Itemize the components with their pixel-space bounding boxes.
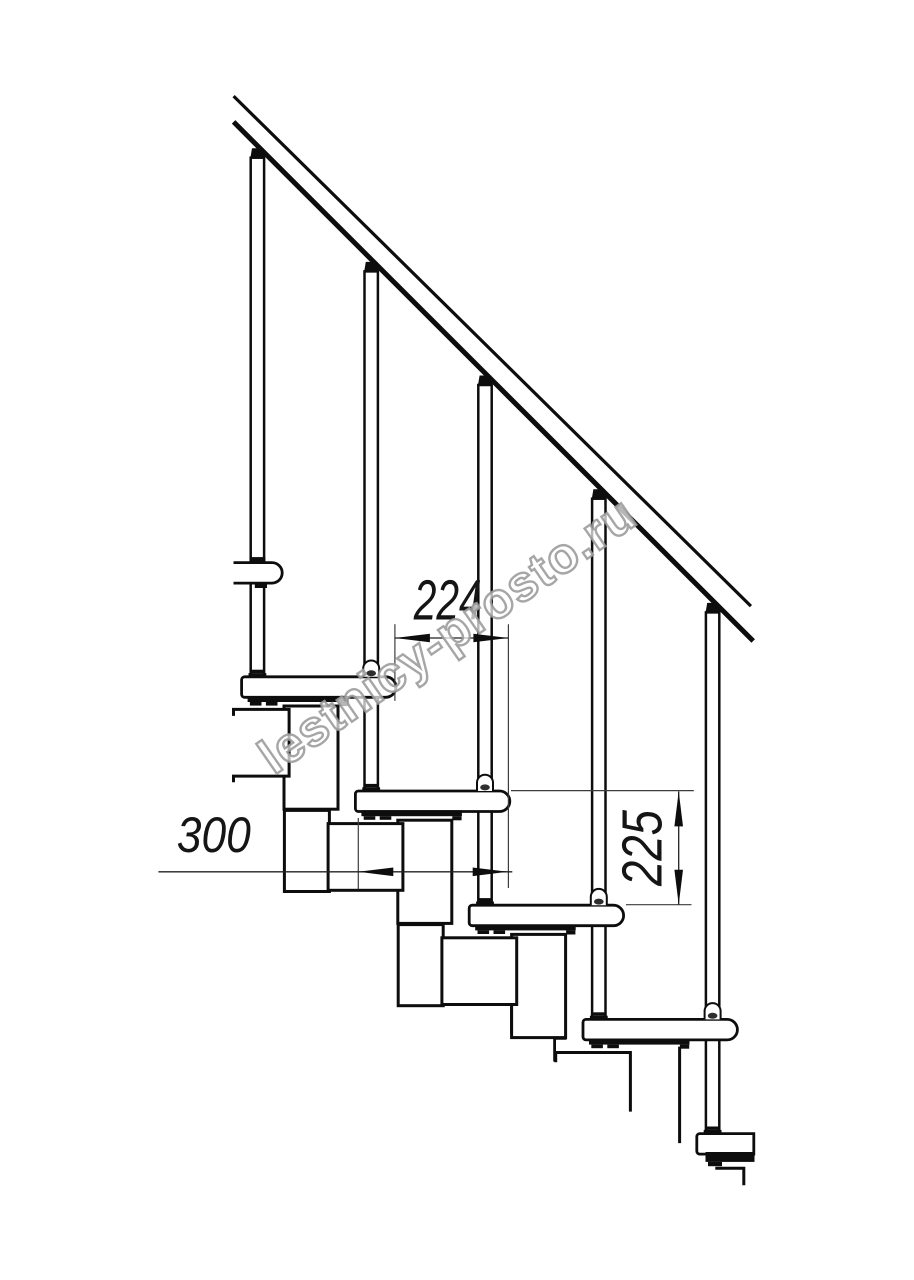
svg-text:225: 225 xyxy=(611,810,675,887)
svg-text:300: 300 xyxy=(177,807,251,863)
